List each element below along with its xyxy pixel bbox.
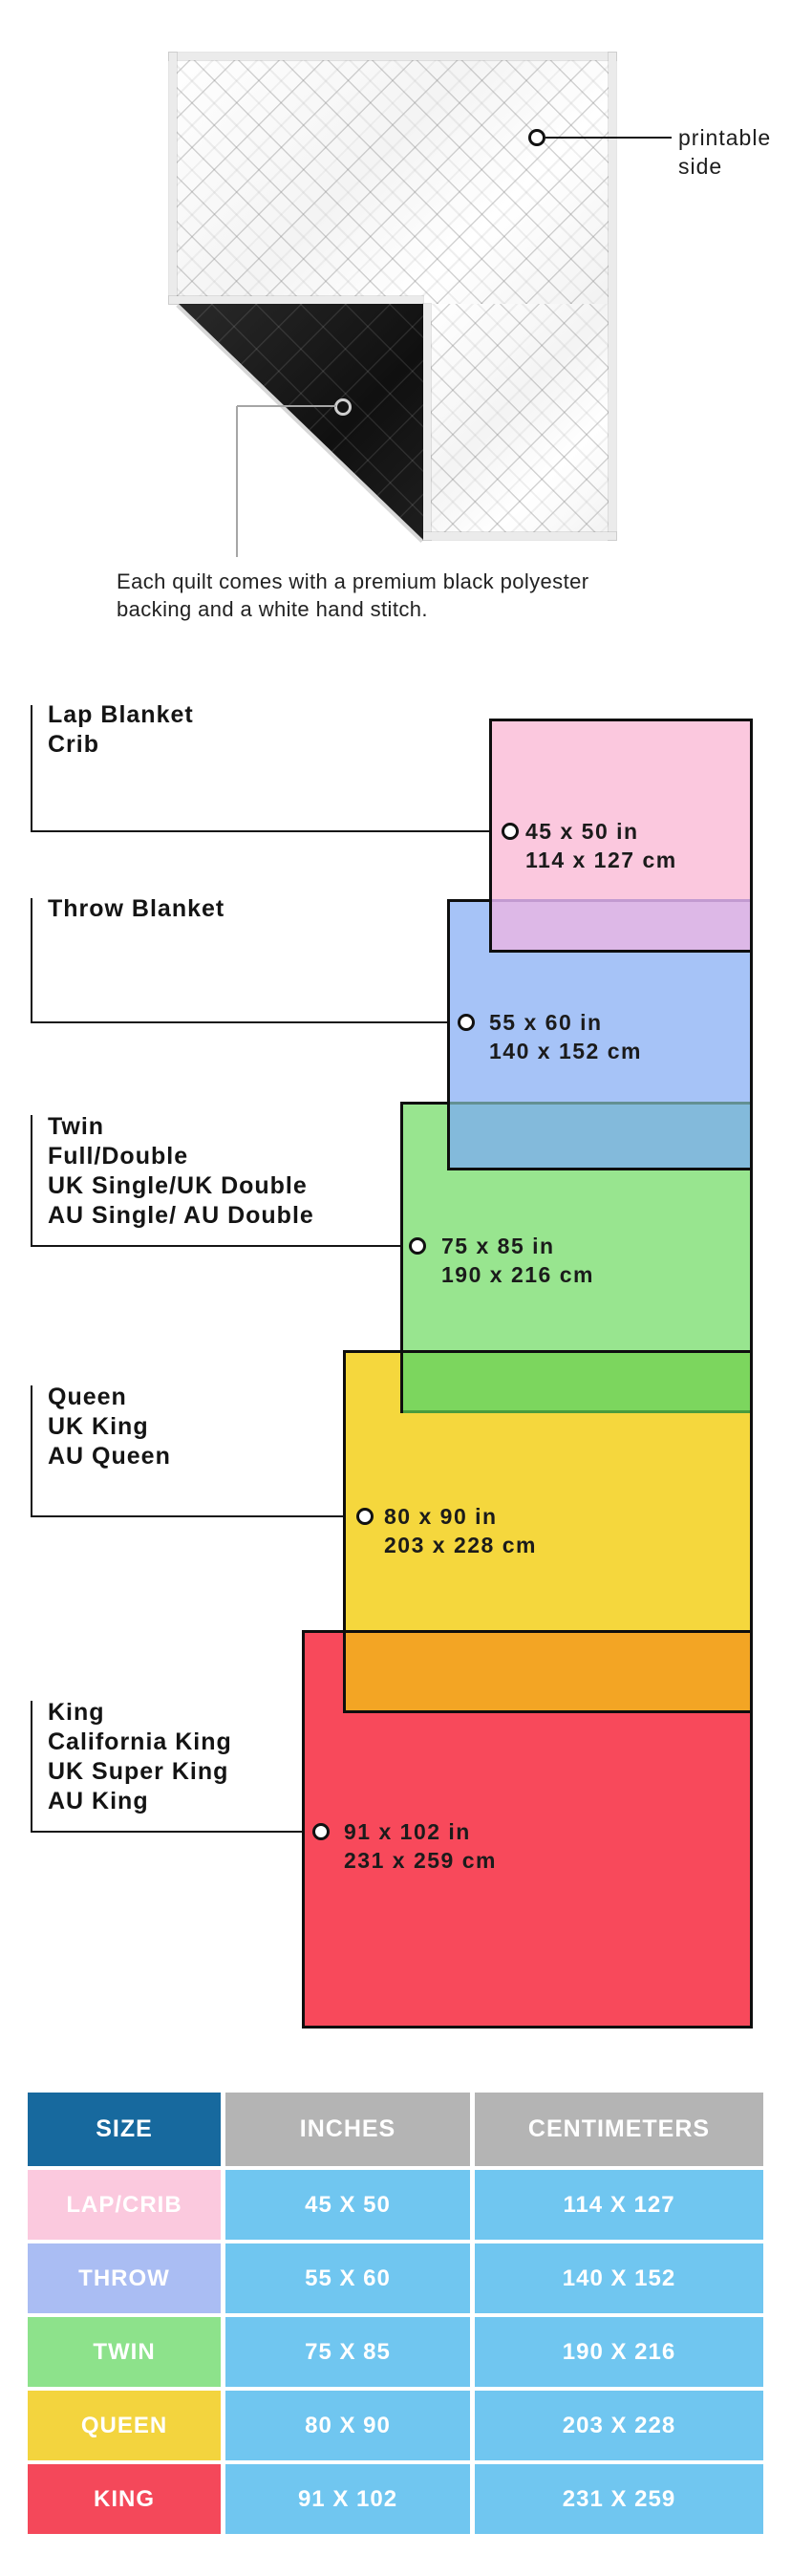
backing-line-v	[236, 406, 238, 557]
table-row-size: KING	[28, 2464, 221, 2534]
dims-throw-cm: 140 x 152 cm	[489, 1037, 642, 1065]
label-king-line2: California King	[48, 1728, 232, 1757]
bracket-king-h	[31, 1831, 314, 1833]
overlap-queen-king	[346, 1633, 750, 1710]
bracket-twin-h	[31, 1245, 411, 1247]
dims-king-inches: 91 x 102 in	[344, 1817, 497, 1846]
dims-lap: 45 x 50 in 114 x 127 cm	[525, 817, 677, 874]
overlap-throw-twin	[450, 1102, 750, 1168]
label-lap: Lap Blanket Crib	[48, 700, 194, 760]
dims-throw-inches: 55 x 60 in	[489, 1008, 642, 1037]
label-king-line1: King	[48, 1698, 232, 1728]
quilt-size-infographic: printable side Each quilt comes with a p…	[0, 0, 791, 2576]
bracket-queen-h	[31, 1515, 358, 1517]
label-queen: Queen UK King AU Queen	[48, 1383, 171, 1471]
table-row-inches: 75 X 85	[225, 2317, 470, 2387]
dims-twin: 75 x 85 in 190 x 216 cm	[441, 1232, 594, 1289]
binding-bottom	[423, 532, 616, 540]
table-row-size: THROW	[28, 2243, 221, 2313]
label-twin-line4: AU Single/ AU Double	[48, 1201, 314, 1231]
marker-queen	[356, 1508, 374, 1525]
marker-king	[312, 1823, 330, 1840]
table-header-inches: INCHES	[225, 2093, 470, 2166]
overlap-twin-queen	[403, 1353, 750, 1413]
printable-side-marker	[528, 129, 545, 146]
table-row-size: QUEEN	[28, 2391, 221, 2460]
quilt-front-top	[169, 53, 616, 304]
king-top-border	[343, 1630, 753, 1633]
dims-twin-inches: 75 x 85 in	[441, 1232, 594, 1260]
label-queen-line1: Queen	[48, 1383, 171, 1412]
bracket-twin-v	[31, 1115, 32, 1247]
table-row-inches: 80 X 90	[225, 2391, 470, 2460]
size-table: SIZE INCHES CENTIMETERS LAP/CRIB 45 X 50…	[28, 2093, 763, 2534]
label-lap-line2: Crib	[48, 730, 194, 760]
label-twin: Twin Full/Double UK Single/UK Double AU …	[48, 1112, 314, 1231]
dims-lap-cm: 114 x 127 cm	[525, 846, 677, 874]
printable-side-label: printable side	[678, 123, 771, 181]
dims-queen-inches: 80 x 90 in	[384, 1502, 537, 1531]
marker-throw	[458, 1014, 475, 1031]
table-header-centimeters: CENTIMETERS	[475, 2093, 763, 2166]
table-row-centimeters: 203 X 228	[475, 2391, 763, 2460]
label-twin-line1: Twin	[48, 1112, 314, 1142]
binding-right	[609, 53, 616, 540]
table-row-centimeters: 190 X 216	[475, 2317, 763, 2387]
overlap-lap-throw	[492, 899, 750, 950]
label-king-line3: UK Super King	[48, 1757, 232, 1787]
table-row-inches: 91 X 102	[225, 2464, 470, 2534]
binding-notch-bottom	[169, 296, 423, 304]
dims-queen-cm: 203 x 228 cm	[384, 1531, 537, 1559]
bracket-lap-v	[31, 705, 32, 832]
label-twin-line2: Full/Double	[48, 1142, 314, 1171]
printable-side-label-line2: side	[678, 152, 771, 181]
quilt-caption-line2: backing and a white hand stitch.	[117, 595, 709, 623]
binding-notch-side	[423, 304, 431, 540]
table-header-size: SIZE	[28, 2093, 221, 2166]
bracket-throw-h	[31, 1021, 460, 1023]
label-queen-line2: UK King	[48, 1412, 171, 1442]
binding-top	[169, 53, 616, 60]
marker-lap	[502, 823, 519, 840]
label-king: King California King UK Super King AU Ki…	[48, 1698, 232, 1816]
bracket-king-v	[31, 1701, 32, 1833]
dims-queen: 80 x 90 in 203 x 228 cm	[384, 1502, 537, 1559]
quilt-caption: Each quilt comes with a premium black po…	[117, 568, 709, 623]
binding-left	[169, 53, 177, 304]
bracket-queen-v	[31, 1385, 32, 1517]
label-twin-line3: UK Single/UK Double	[48, 1171, 314, 1201]
dims-king: 91 x 102 in 231 x 259 cm	[344, 1817, 497, 1875]
label-throw: Throw Blanket	[48, 894, 224, 924]
label-throw-line1: Throw Blanket	[48, 894, 224, 924]
printable-side-line	[545, 137, 672, 139]
label-queen-line3: AU Queen	[48, 1442, 171, 1471]
marker-twin	[409, 1237, 426, 1255]
dims-throw: 55 x 60 in 140 x 152 cm	[489, 1008, 642, 1065]
table-row-centimeters: 140 X 152	[475, 2243, 763, 2313]
dims-king-cm: 231 x 259 cm	[344, 1846, 497, 1875]
table-row-centimeters: 231 X 259	[475, 2464, 763, 2534]
label-lap-line1: Lap Blanket	[48, 700, 194, 730]
table-row-inches: 45 X 50	[225, 2170, 470, 2240]
dims-lap-inches: 45 x 50 in	[525, 817, 677, 846]
table-row-inches: 55 X 60	[225, 2243, 470, 2313]
queen-top-border	[400, 1350, 753, 1353]
backing-line-h	[237, 405, 336, 407]
dims-twin-cm: 190 x 216 cm	[441, 1260, 594, 1289]
bracket-throw-v	[31, 898, 32, 1023]
table-row-size: TWIN	[28, 2317, 221, 2387]
printable-side-label-line1: printable	[678, 123, 771, 152]
label-king-line4: AU King	[48, 1787, 232, 1816]
table-row-size: LAP/CRIB	[28, 2170, 221, 2240]
table-row-centimeters: 114 X 127	[475, 2170, 763, 2240]
quilt-front-right	[423, 304, 616, 540]
backing-marker	[334, 398, 352, 416]
bracket-lap-h	[31, 830, 503, 832]
quilt-caption-line1: Each quilt comes with a premium black po…	[117, 568, 709, 595]
